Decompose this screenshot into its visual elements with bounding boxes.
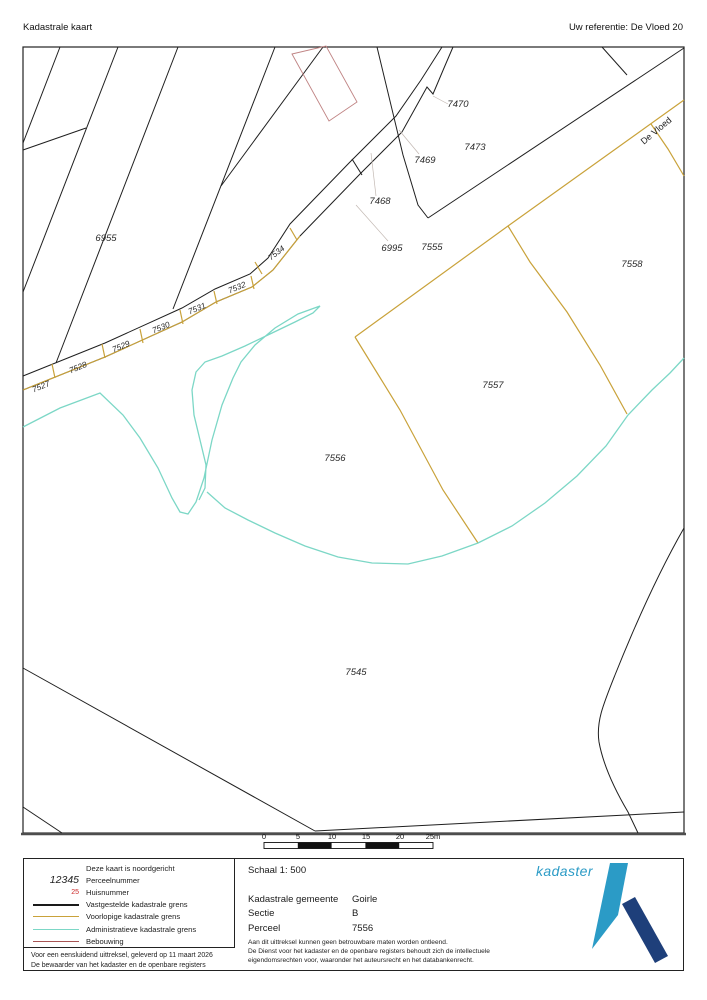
legend-label: Huisnummer	[86, 888, 234, 897]
scale-bar-outline	[264, 843, 433, 849]
parcel-boundary	[23, 47, 118, 292]
strip-parcel-label: 7528	[68, 360, 89, 376]
voorlopige-grens	[355, 337, 478, 543]
leader-line	[433, 96, 448, 104]
scale-tick-label: 25m	[426, 832, 441, 841]
kadastrale-kaart-page: { "header": { "title": "Kadastrale kaart…	[0, 0, 707, 1000]
disclaimer-line: eigendomsrechten voor, waaronder het aut…	[248, 957, 516, 966]
field-row: Perceel 7556	[248, 921, 377, 936]
strip-tick	[52, 364, 55, 378]
scale-bar-segment	[298, 843, 332, 849]
legend-sample-teal-line	[24, 929, 86, 930]
scale-tick-label: 5	[296, 832, 300, 841]
field-label: Perceel	[248, 923, 352, 934]
parcel-label: 7473	[464, 142, 486, 153]
scale-tick-label: 10	[328, 832, 336, 841]
field-value: 7556	[352, 923, 373, 934]
administratieve-grens	[207, 358, 684, 564]
strip-parcel-label: 7527	[31, 379, 52, 395]
legend-sample-parcelnumber: 12345	[24, 874, 86, 886]
parcel-label: 7470	[447, 99, 469, 110]
parcel-label: 7555	[421, 242, 443, 253]
voorlopige-grens	[355, 100, 684, 337]
info-panel: Deze kaart is noordgericht 12345 Perceel…	[23, 858, 684, 971]
parcel-boundary	[23, 47, 60, 143]
parcel-boundary	[23, 668, 315, 831]
legend-sample-red-line	[24, 941, 86, 942]
strip-north-boundary	[23, 47, 442, 376]
disclaimer-line: Aan dit uittreksel kunnen geen betrouwba…	[248, 939, 516, 948]
field-row: Kadastrale gemeente Goirle	[248, 892, 377, 907]
field-label: Kadastrale gemeente	[248, 894, 352, 905]
legend-row: 25 Huisnummer	[24, 886, 234, 898]
parcel-label: 7545	[345, 667, 367, 678]
leader-line	[356, 205, 388, 241]
legend-row: Voorlopige kadastrale grens	[24, 911, 234, 923]
field-row: Sectie B	[248, 907, 377, 922]
parcel-boundary	[23, 128, 86, 150]
legend-row: Deze kaart is noordgericht	[24, 862, 234, 874]
strip-tick	[352, 159, 362, 175]
strip-tick	[290, 228, 297, 240]
legend-sample-housenumber: 25	[24, 889, 86, 896]
kadaster-logo-icon	[570, 859, 682, 970]
strip-parcel-label: 7534	[267, 244, 287, 263]
building-outline	[292, 46, 357, 121]
parcel-label: 7469	[414, 155, 436, 166]
field-value: Goirle	[352, 894, 377, 905]
parcel-label: 7557	[482, 380, 504, 391]
parcel-label: 6995	[381, 243, 403, 254]
legend-sample-black-line	[24, 904, 86, 906]
parcel-label: 6955	[95, 233, 117, 244]
legend-label: Voorlopige kadastrale grens	[86, 912, 234, 921]
parcel-label: 7468	[369, 196, 391, 207]
logo-dark-blade	[622, 897, 668, 963]
strip-tick	[102, 344, 105, 358]
legend-row: Vastgestelde kadastrale grens	[24, 899, 234, 911]
parcel-label: 7556	[324, 453, 346, 464]
extract-details: Schaal 1: 500 Kadastrale gemeente Goirle…	[248, 859, 518, 970]
scale-tick-label: 0	[262, 832, 266, 841]
parcel-boundary	[602, 47, 627, 75]
strip-parcel-label: 7530	[151, 320, 172, 336]
parcel-fields: Kadastrale gemeente Goirle Sectie B Perc…	[248, 892, 377, 936]
scale-text: Schaal 1: 500	[248, 865, 306, 876]
legend-label: Deze kaart is noordgericht	[86, 864, 234, 873]
legend-label: Perceelnummer	[86, 876, 234, 885]
parcel-label: 7558	[621, 259, 643, 270]
legend-row: Bebouwing	[24, 935, 234, 947]
scale-bar-segment	[365, 843, 399, 849]
parcel-boundary	[377, 47, 428, 218]
voorlopige-grens-strip	[23, 236, 300, 390]
legend-label: Vastgestelde kadastrale grens	[86, 900, 234, 909]
legend-label: Administratieve kadastrale grens	[86, 925, 234, 934]
legend-row: Administratieve kadastrale grens	[24, 923, 234, 935]
legend-label: Bebouwing	[86, 937, 234, 946]
strip-south-boundary	[23, 47, 453, 390]
legend-sample-gold-line	[24, 916, 86, 917]
strip-parcel-label: 7529	[111, 339, 132, 355]
legend: Deze kaart is noordgericht 12345 Perceel…	[24, 859, 235, 948]
disclaimer-line: De Dienst voor het kadaster en de openba…	[248, 948, 516, 957]
parcel-boundary	[221, 47, 323, 186]
logo-light-blade	[592, 863, 628, 949]
voorlopige-grens	[508, 226, 627, 414]
map-frame	[23, 47, 684, 833]
cadastral-map: 6955 6995 7555 7558 7473 7469 7470 7468 …	[0, 0, 707, 856]
scale-tick-label: 15	[362, 832, 370, 841]
parcel-boundary	[56, 47, 178, 363]
disclaimer: Aan dit uittreksel kunnen geen betrouwba…	[248, 939, 516, 966]
legend-row: 12345 Perceelnummer	[24, 874, 234, 886]
administratieve-grens	[23, 306, 320, 514]
parcel-boundary	[23, 807, 62, 833]
field-label: Sectie	[248, 908, 352, 919]
field-value: B	[352, 908, 358, 919]
parcel-boundary	[598, 528, 684, 833]
parcel-boundary	[315, 812, 684, 831]
scale-tick-label: 20	[396, 832, 404, 841]
